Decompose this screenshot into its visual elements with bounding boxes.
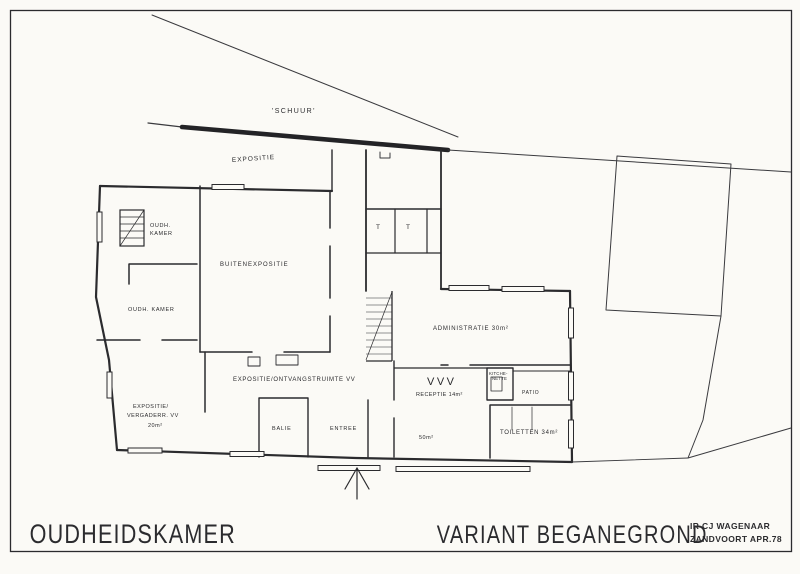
toilet-cell-label: T <box>376 224 381 231</box>
room-label-entree: ENTREE <box>330 426 357 432</box>
window <box>318 466 380 471</box>
furniture-symbol <box>248 357 260 366</box>
room-label-administratie: ADMINISTRATIE 30m² <box>433 326 509 332</box>
shed-label: 'SCHUUR' <box>272 108 316 115</box>
site-boundary-right <box>448 150 791 172</box>
room-label-kitchenette: NETTE <box>492 376 507 381</box>
neighbour-parcel-outline <box>606 156 731 316</box>
vvv-office-label: VVV <box>427 376 457 388</box>
architect-name: IR CJ WAGENAAR <box>690 521 770 531</box>
room-label-area-20m2: 20m² <box>148 423 163 429</box>
site-bottom-line <box>572 458 688 462</box>
room-label-buitenexpositie: BUITENEXPOSITIE <box>220 262 289 268</box>
project-title: OUDHEIDSKAMER <box>30 520 236 550</box>
outdoor-exposition-label: EXPOSITIE <box>232 154 276 164</box>
wall-notch <box>380 152 390 158</box>
stall-partition <box>512 407 532 430</box>
drawing-sheet: 'SCHUUR' EXPOSITIE OUDH. KAMER OUDH. KAM… <box>0 0 800 574</box>
room-label-expositie-vergader: VERGADERR. VV <box>127 413 179 419</box>
toilet-cell-label: T <box>406 224 411 231</box>
stairs-icon <box>366 291 392 361</box>
room-label-oudh-kamer-upper: KAMER <box>150 231 173 237</box>
entrance-arrow-icon <box>345 468 369 499</box>
window <box>97 212 102 242</box>
parcel-corner-line <box>688 428 791 458</box>
stair-run-line <box>120 210 144 246</box>
room-label-balie: BALIE <box>272 426 292 432</box>
wall-segment <box>117 450 572 462</box>
window <box>569 420 574 448</box>
site-diagonal-line <box>152 15 458 137</box>
room-label-toiletten: TOILETTEN 34m² <box>500 430 558 436</box>
drawing-title: VARIANT BEGANEGROND <box>437 521 708 549</box>
window <box>212 185 244 190</box>
room-label-patio: PATIO <box>522 390 539 396</box>
furniture-symbol <box>276 355 298 365</box>
garden-wall-start <box>148 123 182 127</box>
room-label-oudh-kamer-lower: OUDH. KAMER <box>128 307 175 313</box>
window <box>396 467 530 472</box>
window <box>569 372 574 400</box>
room-label-expositie-ontvangstruimte: EXPOSITIE/ONTVANGSTRUIMTE VV <box>233 377 356 383</box>
floor-plan-drawing: 'SCHUUR' EXPOSITIE OUDH. KAMER OUDH. KAM… <box>0 0 800 574</box>
title-block: OUDHEIDSKAMER VARIANT BEGANEGROND IR CJ … <box>30 520 782 550</box>
wall-segment <box>129 264 197 284</box>
site-boundary-lines <box>148 15 791 462</box>
garden-wall-hatched <box>182 127 448 150</box>
window <box>230 452 264 457</box>
room-label-expositie-vergader: EXPOSITIE/ <box>133 404 169 410</box>
hall-area-label: 50m² <box>419 435 434 441</box>
window <box>128 448 162 453</box>
room-label-oudh-kamer-upper: OUDH. <box>150 223 171 229</box>
room-label-receptie: RECEPTIE 14m² <box>416 392 463 398</box>
window <box>569 308 574 338</box>
window <box>449 286 489 291</box>
wall-segment <box>395 209 427 253</box>
window <box>502 287 544 292</box>
window <box>107 372 112 398</box>
stairs-icon <box>120 210 144 246</box>
parcel-edge-line <box>688 316 721 458</box>
place-date: ZANDVOORT APR.78 <box>690 534 782 544</box>
